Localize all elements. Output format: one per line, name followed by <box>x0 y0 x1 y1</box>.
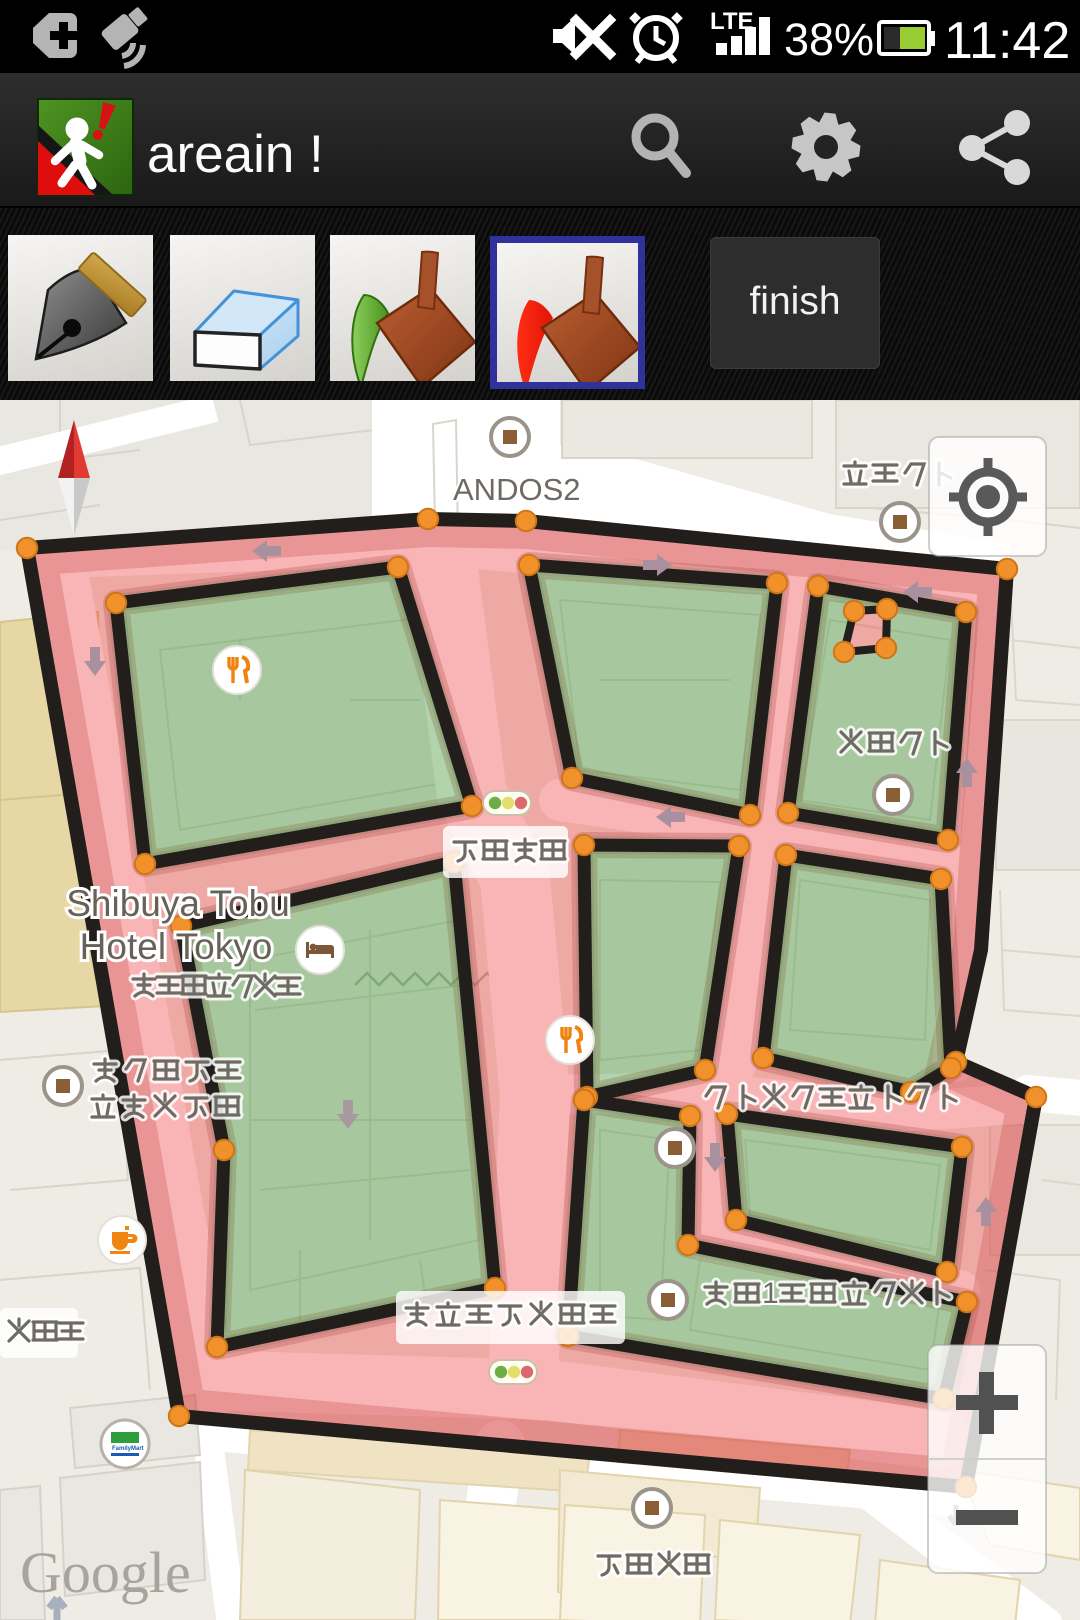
svg-text:FamilyMart: FamilyMart <box>112 1446 144 1452</box>
svg-text:Google: Google <box>20 1540 191 1605</box>
svg-text:Hotel Tokyo: Hotel Tokyo <box>80 926 273 967</box>
svg-text:1: 1 <box>762 1277 779 1310</box>
svg-text:38%: 38% <box>784 14 874 65</box>
svg-text:11:42: 11:42 <box>944 12 1070 70</box>
svg-text:ANDOS2: ANDOS2 <box>453 472 580 507</box>
svg-text:Shibuya Tobu: Shibuya Tobu <box>66 883 290 924</box>
